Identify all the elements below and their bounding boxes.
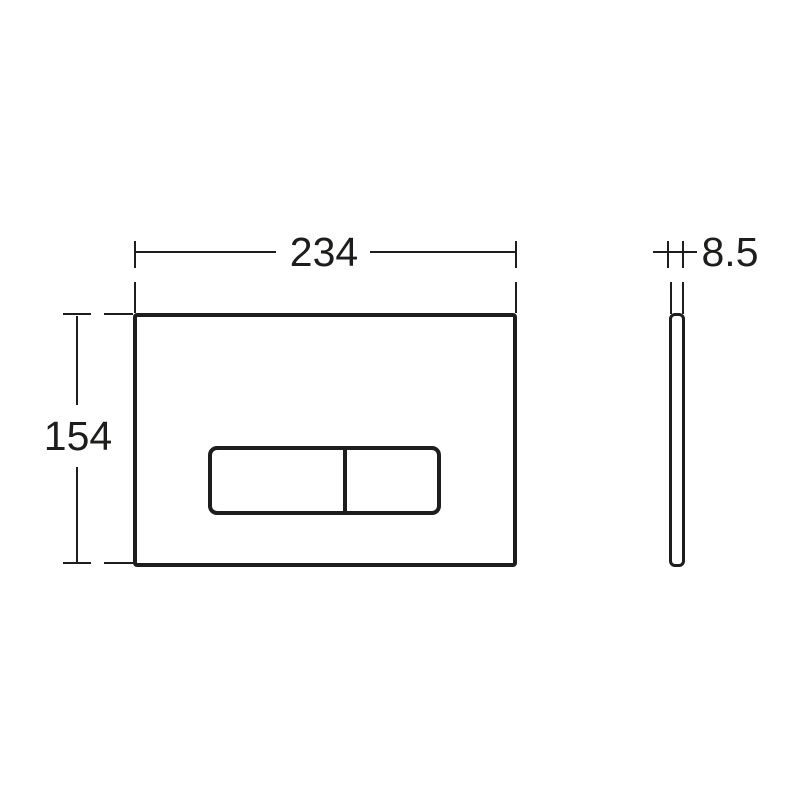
height-dimension-line-top-segment	[76, 316, 78, 405]
button-divider-line	[343, 450, 347, 511]
button-panel-outline	[208, 446, 441, 515]
thickness-extension-line-right	[682, 282, 684, 314]
width-dimension-label: 234	[277, 232, 371, 272]
height-extension-line-bottom	[104, 562, 133, 564]
thickness-dimension-line	[653, 251, 697, 253]
height-dimension-label: 154	[38, 416, 118, 456]
width-dimension-left-tick	[134, 241, 136, 268]
thickness-dimension-right-tick	[682, 241, 684, 268]
thickness-dimension-label: 8.5	[696, 232, 764, 272]
thickness-extension-line-left	[670, 282, 672, 314]
side-profile-outline	[669, 313, 685, 567]
width-extension-line-left	[134, 282, 136, 313]
height-dimension-top-tick	[63, 313, 91, 315]
height-dimension-line-bottom-segment	[76, 467, 78, 563]
thickness-dimension-left-tick	[667, 241, 669, 268]
width-dimension-line-right-segment	[370, 251, 517, 253]
height-extension-line-top	[104, 313, 133, 315]
width-dimension-line-left-segment	[134, 251, 276, 253]
technical-drawing-canvas: 234 154 8.5	[0, 0, 800, 800]
width-extension-line-right	[515, 282, 517, 313]
flush-plate-outline	[133, 313, 517, 567]
width-dimension-right-tick	[515, 241, 517, 268]
height-dimension-bottom-tick	[63, 562, 91, 564]
